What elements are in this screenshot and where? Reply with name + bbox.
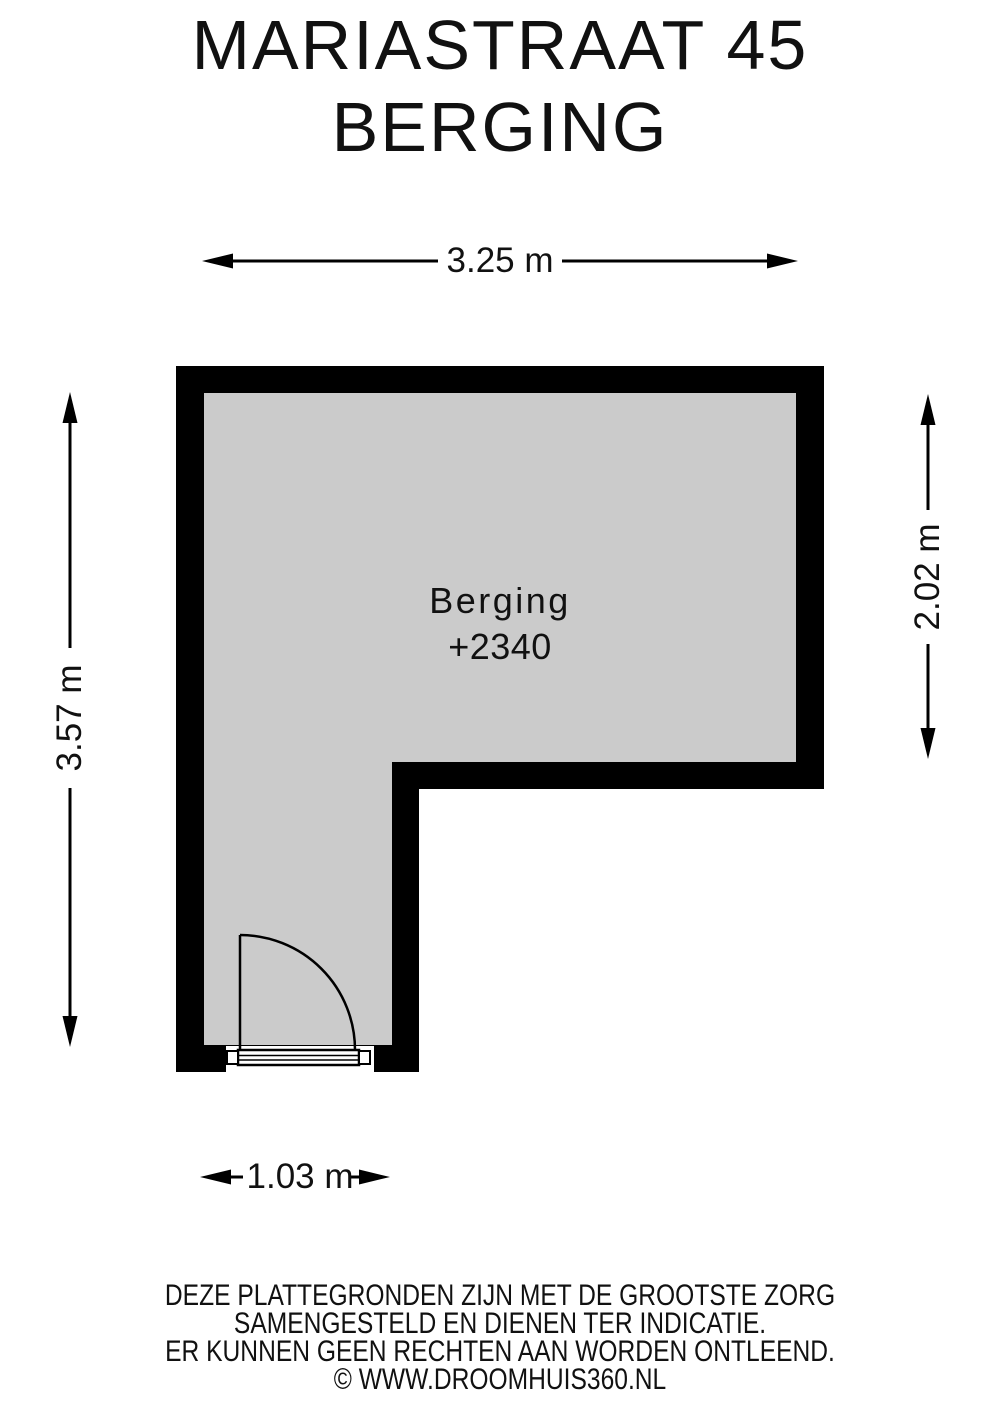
- arrowhead-left-down: [63, 1016, 78, 1047]
- room-name: Berging: [300, 578, 700, 624]
- arrowhead-right-up: [921, 394, 936, 425]
- door-jamb-left: [227, 1051, 238, 1064]
- door-threshold: [227, 1050, 370, 1065]
- disclaimer-line-1: DEZE PLATTEGRONDEN ZIJN MET DE GROOTSTE …: [90, 1282, 910, 1310]
- room-label: Berging +2340: [300, 578, 700, 670]
- disclaimer-line-4: © WWW.DROOMHUIS360.NL: [90, 1366, 910, 1394]
- arrowhead-top-right: [767, 254, 798, 269]
- floorplan-svg: [0, 0, 1000, 1413]
- disclaimer-line-2: SAMENGESTELD EN DIENEN TER INDICATIE.: [90, 1310, 910, 1338]
- dimension-label-bottom: 1.03 m: [220, 1156, 380, 1198]
- dimension-label-top: 3.25 m: [400, 240, 600, 282]
- floorplan-page: MARIASTRAAT 45 BERGING: [0, 0, 1000, 1413]
- dimension-label-right: 2.02 m: [907, 524, 949, 631]
- room-level: +2340: [300, 624, 700, 670]
- footer-disclaimer: DEZE PLATTEGRONDEN ZIJN MET DE GROOTSTE …: [90, 1282, 910, 1394]
- threshold-sill: [238, 1050, 359, 1065]
- arrowhead-right-down: [921, 728, 936, 759]
- door-jamb-right: [359, 1051, 370, 1064]
- dimension-label-left: 3.57 m: [49, 665, 91, 772]
- arrowhead-left-up: [63, 392, 78, 423]
- arrowhead-top-left: [202, 254, 233, 269]
- disclaimer-line-3: ER KUNNEN GEEN RECHTEN AAN WORDEN ONTLEE…: [90, 1338, 910, 1366]
